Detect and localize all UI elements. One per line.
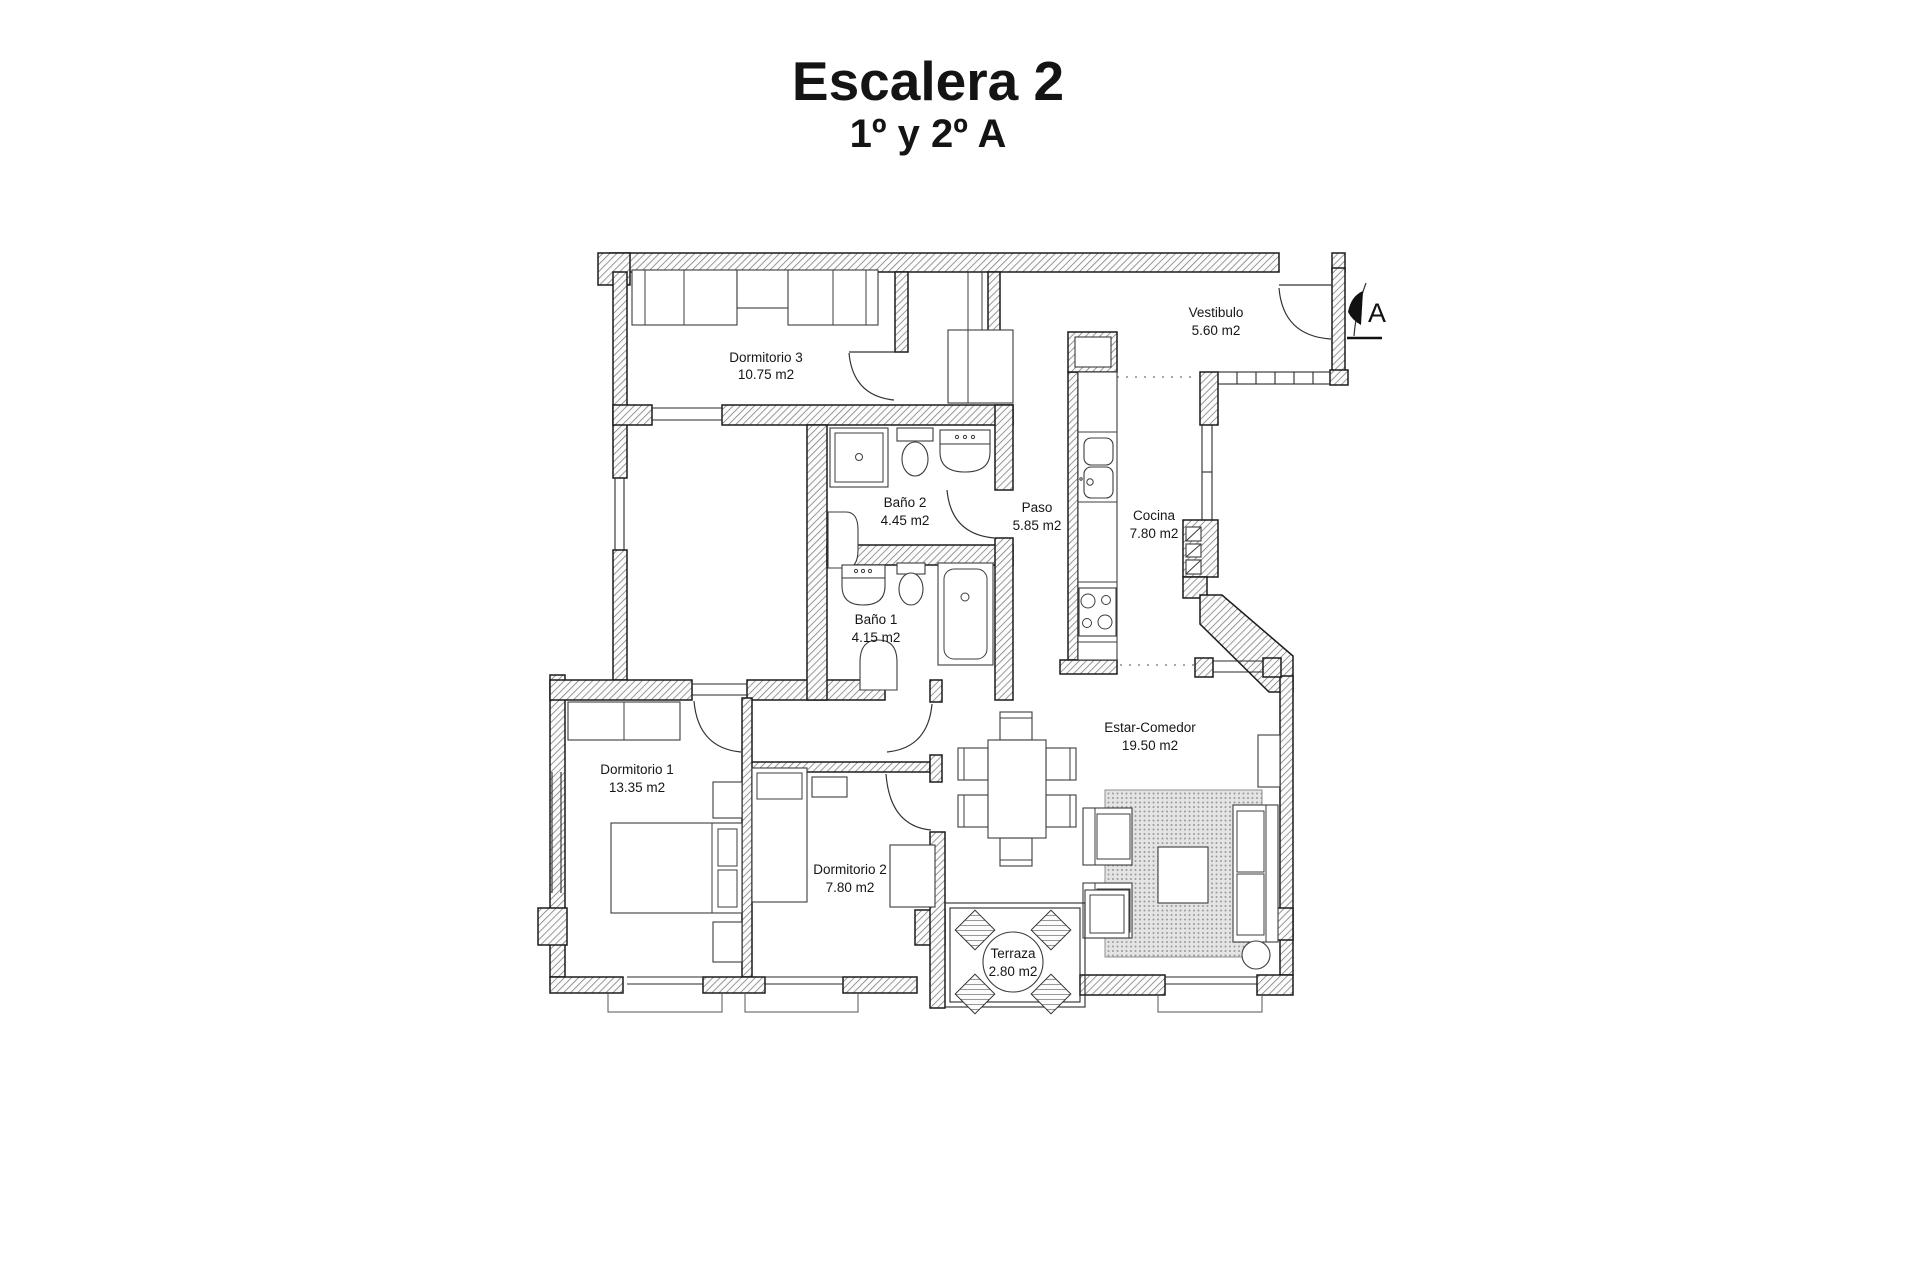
chair	[1046, 795, 1076, 827]
wardrobe	[890, 845, 935, 907]
bidet	[828, 512, 858, 568]
toilet-tank	[897, 428, 933, 441]
chair	[958, 748, 988, 780]
dormitorio1-door	[692, 684, 747, 752]
tv-cabinet	[1258, 735, 1280, 787]
room-area-dormitorio1: 13.35 m2	[609, 780, 665, 795]
sink	[940, 430, 990, 444]
sink-bowl	[1084, 467, 1113, 498]
room-area-dormitorio2: 7.80 m2	[826, 880, 875, 895]
dormitorio3-furniture	[632, 270, 878, 325]
single-bed	[752, 768, 807, 902]
bidet	[860, 640, 897, 690]
chair	[1000, 838, 1032, 866]
vestibulo-closet	[948, 272, 1013, 403]
room-area-bano1: 4.15 m2	[852, 630, 901, 645]
nightstand	[737, 270, 790, 308]
room-label-paso: Paso	[1022, 500, 1053, 515]
room-area-vestibulo: 5.60 m2	[1192, 323, 1241, 338]
scanned-floor-plan-page: { "title": "Escalera 2", "subtitle": "1º…	[0, 0, 1920, 1280]
chair	[958, 795, 988, 827]
room-label-dormitorio2: Dormitorio 2	[813, 862, 887, 877]
marker-letter: A	[1368, 298, 1386, 328]
bano1-door	[887, 704, 932, 752]
nightstand	[713, 782, 742, 818]
room-label-vestibulo: Vestibulo	[1189, 305, 1244, 320]
room-label-bano1: Baño 1	[855, 612, 898, 627]
round-table	[983, 932, 1043, 992]
toilet	[902, 442, 928, 476]
terrace-door	[1085, 890, 1129, 938]
bathtub	[938, 563, 993, 665]
entrance-door	[1279, 285, 1332, 339]
armchair	[1083, 808, 1132, 865]
side-table	[1242, 941, 1270, 969]
room-label-terraza: Terraza	[990, 946, 1036, 961]
cocina-fixtures	[1068, 332, 1201, 660]
chair	[1046, 748, 1076, 780]
dormitorio2-door	[886, 774, 931, 830]
room-area-estar-comedor: 19.50 m2	[1122, 738, 1178, 753]
toilet-tank	[897, 563, 925, 574]
room-label-dormitorio1: Dormitorio 1	[600, 762, 674, 777]
room-label-dormitorio3: Dormitorio 3	[729, 350, 803, 365]
room-area-terraza: 2.80 m2	[989, 964, 1038, 979]
room-area-paso: 5.85 m2	[1013, 518, 1062, 533]
sink-bowl	[1084, 438, 1113, 465]
room-label-bano2: Baño 2	[884, 495, 927, 510]
nightstand	[713, 922, 742, 962]
double-bed	[611, 823, 742, 913]
shower	[830, 428, 888, 487]
floor-plan-drawing: Escalera 2 1º y 2º A	[0, 0, 1920, 1280]
nightstand	[812, 777, 847, 797]
marker-flag-icon	[1348, 291, 1363, 325]
room-label-cocina: Cocina	[1133, 508, 1176, 523]
plan-title: Escalera 2	[792, 50, 1064, 112]
dormitorio1-furniture	[568, 702, 742, 962]
estar-comedor-furniture	[958, 712, 1280, 969]
bano2-door	[947, 490, 994, 538]
room-label-estar-comedor: Estar-Comedor	[1104, 720, 1196, 735]
entrance-marker: A	[1347, 283, 1386, 338]
cabinet	[948, 330, 1013, 403]
toilet	[899, 573, 923, 605]
room-area-dormitorio3: 10.75 m2	[738, 367, 794, 382]
dining-table	[988, 740, 1046, 838]
room-area-bano2: 4.45 m2	[881, 513, 930, 528]
dormitorio3-door	[849, 352, 895, 400]
room-area-cocina: 7.80 m2	[1130, 526, 1179, 541]
plan-subtitle: 1º y 2º A	[850, 112, 1007, 156]
chair	[1000, 712, 1032, 740]
sink	[842, 565, 885, 578]
coffee-table	[1158, 847, 1208, 903]
